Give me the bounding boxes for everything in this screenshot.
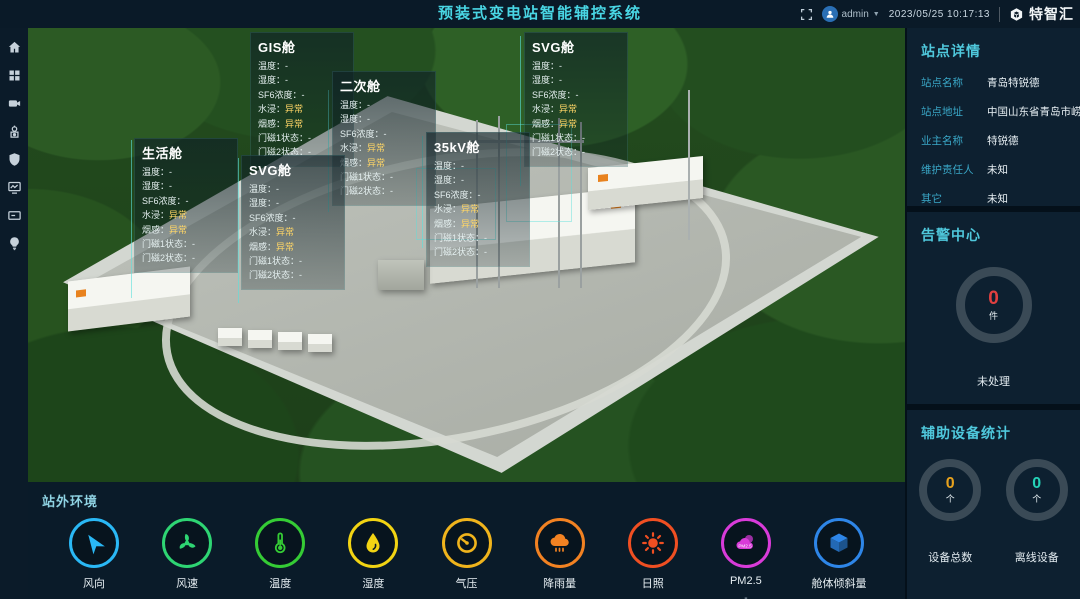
- env-item-rainfall: 降雨量-: [524, 518, 596, 599]
- sidebar-item-video[interactable]: [7, 96, 22, 111]
- device-stat-unit: 个: [1032, 492, 1041, 505]
- transformer-unit: [378, 260, 424, 290]
- cabin-info-panel: SVG舱温度：-湿度：-SF6浓度：-水浸：异常烟感：异常门磁1状态：-门磁2状…: [241, 155, 345, 290]
- video-icon: [7, 96, 22, 111]
- cabin-info-label: 水浸：: [532, 104, 559, 114]
- cabin-building: [308, 334, 332, 352]
- cabin-info-row: 水浸：异常: [142, 208, 230, 222]
- cabin-info-row: 门磁2状态：-: [340, 184, 428, 198]
- monitor-icon: [7, 180, 22, 195]
- cabin-info-value: -: [308, 133, 311, 143]
- cabin-info-label: 水浸：: [340, 143, 367, 153]
- rainfall-icon: [548, 531, 572, 555]
- environment-items: 风向-风速-温度-湿度-气压-降雨量-日照-PM2.5PM2.5-舱体倾斜量-: [58, 518, 875, 599]
- cabin-info-value: -: [367, 114, 370, 124]
- environment-title: 站外环境: [42, 491, 891, 510]
- brand-logo: 特智汇: [1009, 4, 1074, 24]
- device-stat-ring: 0个: [919, 459, 981, 521]
- cabin-info-row: 温度：-: [142, 165, 230, 179]
- cabin-info-label: SF6浓度：: [142, 196, 186, 206]
- env-ring: [814, 518, 864, 568]
- cabin-info-label: 湿度：: [142, 181, 169, 191]
- cabin-info-value: 异常: [559, 104, 577, 114]
- env-item-tilt: 舱体倾斜量-: [803, 518, 875, 599]
- cabin-info-value: -: [384, 129, 387, 139]
- cabin-info-label: SF6浓度：: [532, 90, 576, 100]
- cabin-info-value: -: [299, 256, 302, 266]
- cabin-info-value: 异常: [169, 210, 187, 220]
- cabin-info-value: -: [484, 247, 487, 257]
- cabin-info-row: SF6浓度：-: [532, 88, 620, 102]
- cabin-info-row: 水浸：异常: [340, 141, 428, 155]
- cabin-info-value: 异常: [169, 225, 187, 235]
- cabin-info-row: 湿度：-: [340, 112, 428, 126]
- cabin-info-value: -: [285, 75, 288, 85]
- main-area: GIS舱温度：-湿度：-SF6浓度：-水浸：异常烟感：异常门磁1状态：-门磁2状…: [28, 28, 905, 599]
- cabin-info-row: 门磁1状态：-: [249, 254, 337, 268]
- cabin-info-row: 水浸：异常: [532, 102, 620, 116]
- cabin-title: GIS舱: [258, 37, 346, 56]
- env-item-temperature: 温度-: [244, 518, 316, 599]
- cabin-info-row: 门磁2状态：-: [142, 251, 230, 265]
- cabin-info-label: 门磁1状态：: [249, 256, 299, 266]
- env-ring: [535, 518, 585, 568]
- cabin-info-value: 异常: [276, 242, 294, 252]
- cabin-title: 35kV舱: [434, 137, 522, 156]
- fullscreen-icon[interactable]: [800, 8, 813, 21]
- sidebar-item-robot[interactable]: [7, 124, 22, 139]
- cabin-info-label: 水浸：: [434, 204, 461, 214]
- env-item-wind-speed: 风速-: [151, 518, 223, 599]
- cabin-info-label: 门磁2状态：: [249, 270, 299, 280]
- cabin-info-row: 湿度：-: [532, 73, 620, 87]
- cabin-info-value: -: [169, 181, 172, 191]
- cabin-info-label: SF6浓度：: [258, 90, 302, 100]
- env-ring: [628, 518, 678, 568]
- env-label: 气压: [456, 575, 478, 591]
- device-stats-title: 辅助设备统计: [907, 410, 1080, 443]
- substation-3d-view[interactable]: GIS舱温度：-湿度：-SF6浓度：-水浸：异常烟感：异常门磁1状态：-门磁2状…: [28, 28, 905, 482]
- cabin-info-value: 异常: [461, 204, 479, 214]
- cabin-info-value: 异常: [276, 227, 294, 237]
- cabin-building: [278, 332, 302, 350]
- cabin-info-value: -: [169, 167, 172, 177]
- env-label: 风向: [83, 575, 105, 591]
- alarm-count: 0: [988, 289, 999, 308]
- cabin-info-row: 烟感：异常: [340, 156, 428, 170]
- cabin-info-label: 门磁1状态：: [340, 172, 390, 182]
- cabin-info-value: -: [293, 213, 296, 223]
- cabin-info-label: 温度：: [142, 167, 169, 177]
- device-stat-ring: 0个: [1006, 459, 1068, 521]
- cabin-info-value: -: [367, 100, 370, 110]
- cabin-info-label: 温度：: [434, 161, 461, 171]
- cabin-info-label: 水浸：: [142, 210, 169, 220]
- leader-line: [238, 158, 239, 303]
- cabin-info-value: 异常: [367, 158, 385, 168]
- sidebar-item-monitor[interactable]: [7, 180, 22, 195]
- sidebar-item-home[interactable]: [7, 40, 22, 55]
- user-menu[interactable]: admin ▼: [822, 6, 880, 22]
- alarm-status-label: 未处理: [977, 373, 1010, 389]
- wind-speed-icon: [175, 531, 199, 555]
- env-item-humidity: 湿度-: [337, 518, 409, 599]
- cabin-info-value: -: [285, 61, 288, 71]
- site-detail-label: 站点地址: [921, 98, 987, 127]
- cabin-info-row: 门磁1状态：-: [340, 170, 428, 184]
- device-stat: 0个设备总数: [919, 459, 981, 565]
- right-panel: 站点详情 站点名称青岛特锐德站点地址中国山东省青岛市崂山区业主名称特锐德维护责任…: [907, 28, 1080, 599]
- cabin-info-label: 门磁2状态：: [142, 253, 192, 263]
- sidebar-item-shield[interactable]: [7, 152, 22, 167]
- cabin-info-value: -: [192, 253, 195, 263]
- site-detail-value: 特锐德: [987, 127, 1019, 156]
- cabin-info-row: SF6浓度：-: [249, 211, 337, 225]
- env-ring: [255, 518, 305, 568]
- cabin-info-row: 水浸：异常: [249, 225, 337, 239]
- site-detail-value: 中国山东省青岛市崂山区: [987, 98, 1080, 127]
- cabin-info-value: -: [559, 61, 562, 71]
- cabin-info-value: -: [576, 90, 579, 100]
- sidebar-item-bulb[interactable]: [7, 236, 22, 251]
- env-item-sunshine: 日照-: [617, 518, 689, 599]
- alarm-center-title: 告警中心: [907, 212, 1080, 245]
- cabin-info-row: SF6浓度：-: [434, 188, 522, 202]
- cabin-info-row: 湿度：-: [142, 179, 230, 193]
- cabin-info-label: 湿度：: [434, 175, 461, 185]
- cabin-info-label: 门磁1状态：: [532, 133, 582, 143]
- cabin-info-row: 烟感：异常: [532, 117, 620, 131]
- cabin-info-row: 门磁2状态：-: [434, 245, 522, 259]
- cabin-info-label: 烟感：: [532, 119, 559, 129]
- cabin-info-value: -: [302, 90, 305, 100]
- cabin-info-label: 门磁1状态：: [434, 233, 484, 243]
- cabin-info-label: 湿度：: [249, 198, 276, 208]
- cabin-info-row: 温度：-: [434, 159, 522, 173]
- cabin-info-label: 门磁2状态：: [532, 147, 582, 157]
- site-detail-value: 未知: [987, 185, 1008, 214]
- site-detail-row: 维护责任人未知: [921, 156, 1070, 185]
- device-stat-count: 0: [946, 476, 955, 492]
- site-detail-label: 站点名称: [921, 69, 987, 98]
- env-label: 降雨量: [543, 575, 576, 591]
- env-ring: PM2.5: [721, 518, 771, 568]
- cabin-info-row: 温度：-: [340, 98, 428, 112]
- cabin-info-value: -: [186, 196, 189, 206]
- cabin-info-label: 门磁1状态：: [142, 239, 192, 249]
- env-label: 日照: [642, 575, 664, 591]
- cabin-info-row: 门磁2状态：-: [532, 145, 620, 159]
- cabin-info-value: -: [478, 190, 481, 200]
- cabin-info-label: 烟感：: [258, 119, 285, 129]
- env-value: -: [744, 593, 747, 599]
- cabin-info-label: 门磁2状态：: [340, 186, 390, 196]
- pressure-icon: [455, 531, 479, 555]
- humidity-icon: [361, 531, 385, 555]
- cabin-info-label: 温度：: [249, 184, 276, 194]
- cabin-info-label: 烟感：: [142, 225, 169, 235]
- site-detail-label: 业主名称: [921, 127, 987, 156]
- env-ring: [69, 518, 119, 568]
- site-detail-row: 站点名称青岛特锐德: [921, 69, 1070, 98]
- robot-icon: [7, 124, 22, 139]
- cabin-building: [218, 328, 242, 346]
- bulb-icon: [7, 236, 22, 251]
- cabin-info-panel: 35kV舱温度：-湿度：-SF6浓度：-水浸：异常烟感：异常门磁1状态：-门磁2…: [426, 132, 530, 267]
- cabin-info-label: 湿度：: [340, 114, 367, 124]
- avatar: [822, 6, 838, 22]
- cabin-info-row: 烟感：异常: [142, 223, 230, 237]
- cabin-info-value: -: [390, 172, 393, 182]
- site-detail-row: 其它未知: [921, 185, 1070, 214]
- cabin-info-value: 异常: [285, 119, 303, 129]
- cabin-info-panel: SVG舱温度：-湿度：-SF6浓度：-水浸：异常烟感：异常门磁1状态：-门磁2状…: [524, 32, 628, 167]
- header-divider: [999, 7, 1000, 22]
- site-detail-label: 其它: [921, 185, 987, 214]
- cabin-title: 二次舱: [340, 76, 428, 95]
- device-stat-label: 离线设备: [1015, 549, 1059, 565]
- device-stat-label: 设备总数: [928, 549, 972, 565]
- cabin-info-row: 门磁1状态：-: [142, 237, 230, 251]
- cabin-info-row: 水浸：异常: [434, 202, 522, 216]
- cabin-info-value: -: [276, 198, 279, 208]
- env-label: 舱体倾斜量: [812, 575, 867, 591]
- cabin-info-label: 湿度：: [532, 75, 559, 85]
- cabin-info-label: 水浸：: [258, 104, 285, 114]
- cabin-info-value: -: [276, 184, 279, 194]
- cabin-building: [248, 330, 272, 348]
- site-detail-label: 维护责任人: [921, 156, 987, 185]
- cabin-info-label: 湿度：: [258, 75, 285, 85]
- device-stat-unit: 个: [946, 492, 955, 505]
- cabin-info-row: 门磁2状态：-: [249, 268, 337, 282]
- site-detail-value: 未知: [987, 156, 1008, 185]
- cabin-info-row: 烟感：异常: [249, 240, 337, 254]
- cabin-info-label: 门磁1状态：: [258, 133, 308, 143]
- env-item-pressure: 气压-: [431, 518, 503, 599]
- left-sidebar: [0, 28, 28, 599]
- env-ring: [442, 518, 492, 568]
- cabin-info-value: -: [192, 239, 195, 249]
- wind-direction-icon: [82, 531, 106, 555]
- cabin-info-value: -: [582, 147, 585, 157]
- cabin-info-label: 水浸：: [249, 227, 276, 237]
- env-item-wind-direction: 风向-: [58, 518, 130, 599]
- logo-chip: [598, 174, 608, 182]
- cabin-info-value: -: [484, 233, 487, 243]
- outside-environment-bar: 站外环境 风向-风速-温度-湿度-气压-降雨量-日照-PM2.5PM2.5-舱体…: [28, 482, 905, 599]
- cabin-info-row: SF6浓度：-: [142, 194, 230, 208]
- cabin-info-row: 门磁1状态：-: [532, 131, 620, 145]
- cabin-info-value: -: [582, 133, 585, 143]
- cabin-info-row: 温度：-: [532, 59, 620, 73]
- cabin-info-label: SF6浓度：: [340, 129, 384, 139]
- brand-cube-icon: [1009, 7, 1024, 22]
- site-detail-row: 站点地址中国山东省青岛市崂山区: [921, 98, 1070, 127]
- cabin-title: 生活舱: [142, 143, 230, 162]
- device-stat: 0个离线设备: [1006, 459, 1068, 565]
- site-details-section: 站点详情 站点名称青岛特锐德站点地址中国山东省青岛市崂山区业主名称特锐德维护责任…: [907, 28, 1080, 206]
- sidebar-item-panel[interactable]: [7, 208, 22, 223]
- cabin-info-value: -: [461, 175, 464, 185]
- env-item-pm25: PM2.5PM2.5-: [710, 518, 782, 599]
- device-stat-count: 0: [1032, 476, 1041, 492]
- home-icon: [7, 40, 22, 55]
- cabin-info-value: -: [390, 186, 393, 196]
- env-label: PM2.5: [730, 575, 762, 587]
- alarm-center-section: 告警中心 0 件 未处理: [907, 212, 1080, 404]
- cabin-info-label: 温度：: [340, 100, 367, 110]
- cabin-info-label: SF6浓度：: [434, 190, 478, 200]
- sunshine-icon: [641, 531, 665, 555]
- cabin-info-value: -: [299, 270, 302, 280]
- sidebar-item-apps[interactable]: [7, 68, 22, 83]
- cabin-info-label: 温度：: [258, 61, 285, 71]
- site-detail-row: 业主名称特锐德: [921, 127, 1070, 156]
- cabin-info-panel: 生活舱温度：-湿度：-SF6浓度：-水浸：异常烟感：异常门磁1状态：-门磁2状态…: [134, 138, 238, 273]
- brand-name: 特智汇: [1029, 4, 1074, 24]
- cabin-info-row: 门磁1状态：-: [434, 231, 522, 245]
- site-details-title: 站点详情: [907, 28, 1080, 61]
- shield-icon: [7, 152, 22, 167]
- datetime: 2023/05/25 10:17:13: [889, 9, 990, 20]
- cabin-title: SVG舱: [249, 160, 337, 179]
- cabin-info-panel: 二次舱温度：-湿度：-SF6浓度：-水浸：异常烟感：异常门磁1状态：-门磁2状态…: [332, 71, 436, 206]
- site-detail-value: 青岛特锐德: [987, 69, 1040, 98]
- cabin-info-row: SF6浓度：-: [340, 127, 428, 141]
- cabin-info-row: 烟感：异常: [434, 217, 522, 231]
- cabin-info-label: 温度：: [532, 61, 559, 71]
- apps-icon: [7, 68, 22, 83]
- logo-chip: [76, 289, 86, 297]
- cabin-info-row: 温度：-: [249, 182, 337, 196]
- tilt-icon: [827, 531, 851, 555]
- cabin-info-label: 烟感：: [434, 219, 461, 229]
- cabin-info-value: 异常: [461, 219, 479, 229]
- env-label: 风速: [176, 575, 198, 591]
- cabin-info-value: -: [559, 75, 562, 85]
- cabin-title: SVG舱: [532, 37, 620, 56]
- alarm-unit: 件: [989, 309, 998, 322]
- temperature-icon: [268, 531, 292, 555]
- site-details-fields: 站点名称青岛特锐德站点地址中国山东省青岛市崂山区业主名称特锐德维护责任人未知其它…: [907, 61, 1080, 214]
- cabin-info-label: SF6浓度：: [249, 213, 293, 223]
- header-bar: 预装式变电站智能辅控系统 admin ▼ 2023/05/25 10:17:13…: [0, 0, 1080, 28]
- env-ring: [162, 518, 212, 568]
- cabin-info-value: 异常: [285, 104, 303, 114]
- alarm-count-ring: 0 件: [956, 267, 1032, 343]
- username: admin: [842, 9, 869, 20]
- cabin-info-row: 湿度：-: [249, 196, 337, 210]
- cabin-info-value: -: [461, 161, 464, 171]
- env-ring: [348, 518, 398, 568]
- env-label: 湿度: [362, 575, 384, 591]
- device-stats-section: 辅助设备统计 0个设备总数0个离线设备: [907, 410, 1080, 599]
- env-label: 温度: [269, 575, 291, 591]
- leader-line: [131, 140, 132, 298]
- pm25-icon: PM2.5: [734, 531, 758, 555]
- panel-icon: [7, 208, 22, 223]
- chevron-down-icon: ▼: [873, 11, 880, 18]
- cabin-info-value: 异常: [367, 143, 385, 153]
- cabin-info-label: 门磁2状态：: [434, 247, 484, 257]
- cabin-info-value: 异常: [559, 119, 577, 129]
- lightning-rod: [688, 90, 690, 240]
- device-stats-items: 0个设备总数0个离线设备: [907, 459, 1080, 565]
- cabin-info-label: 烟感：: [249, 242, 276, 252]
- svg-text:PM2.5: PM2.5: [738, 544, 752, 549]
- cabin-info-row: 湿度：-: [434, 173, 522, 187]
